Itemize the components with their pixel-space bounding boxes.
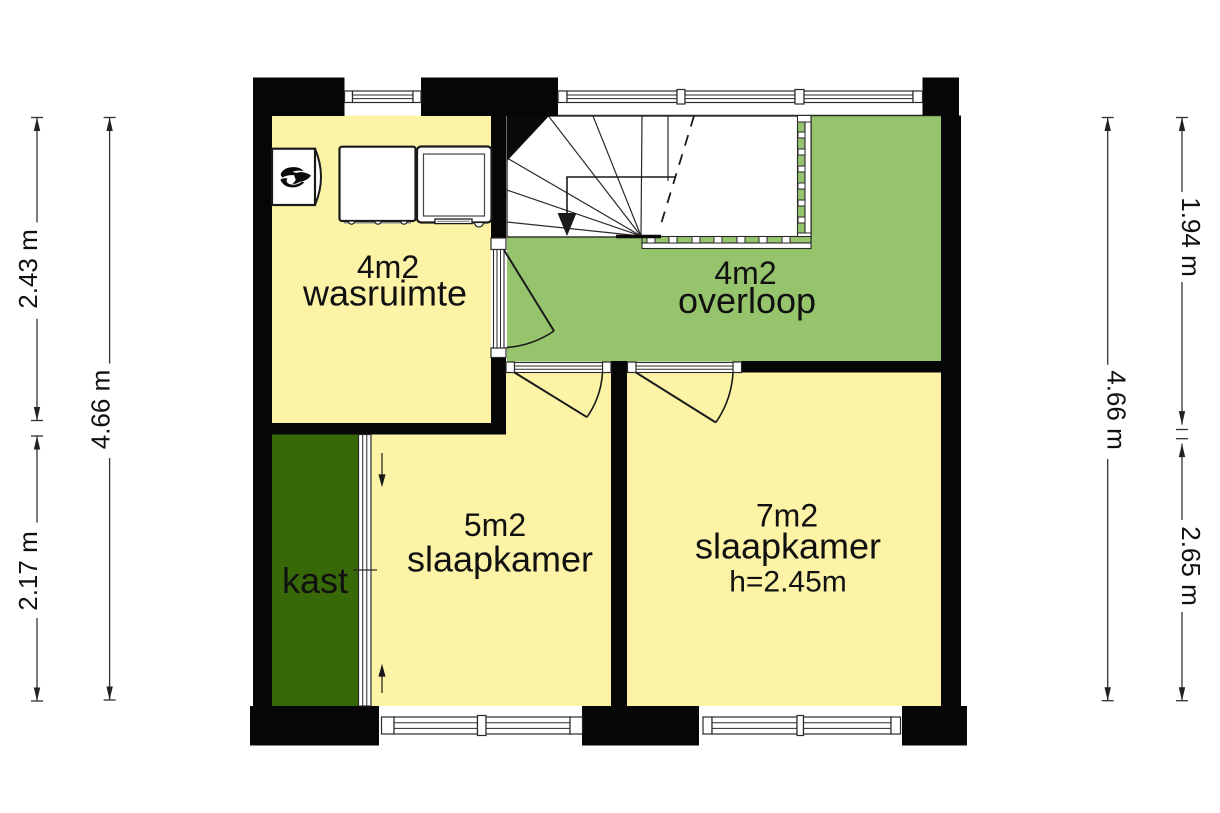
svg-text:2.65 m: 2.65 m	[1176, 526, 1206, 606]
svg-text:2.43 m: 2.43 m	[13, 229, 43, 309]
svg-text:1.94 m: 1.94 m	[1176, 197, 1206, 277]
svg-text:overloop: overloop	[678, 280, 816, 321]
svg-text:slaapkamer: slaapkamer	[407, 539, 593, 580]
svg-text:slaapkamer: slaapkamer	[695, 526, 881, 567]
svg-text:h=2.45m: h=2.45m	[729, 566, 847, 599]
svg-text:4.66 m: 4.66 m	[86, 370, 116, 450]
svg-text:2.17 m: 2.17 m	[13, 531, 43, 611]
svg-text:4.66 m: 4.66 m	[1102, 370, 1132, 450]
svg-text:wasruimte: wasruimte	[302, 273, 467, 314]
svg-text:kast: kast	[282, 560, 348, 601]
